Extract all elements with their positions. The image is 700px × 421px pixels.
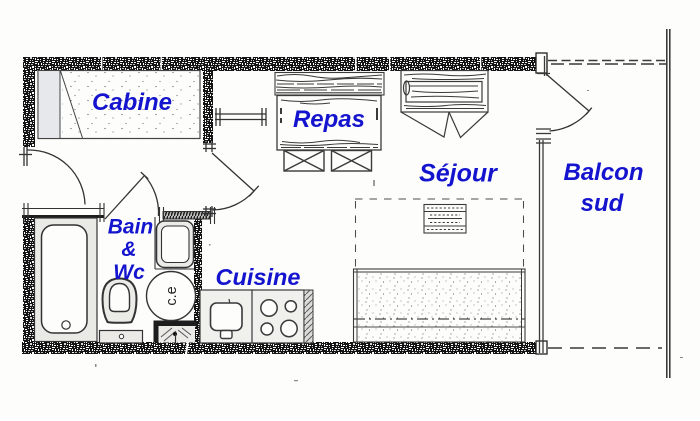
svg-text:c.e: c.e xyxy=(164,286,180,305)
svg-text:Balcon: Balcon xyxy=(563,159,643,186)
svg-text:Séjour: Séjour xyxy=(419,160,498,188)
svg-text:Cabine: Cabine xyxy=(92,89,172,116)
svg-text:Cuisine: Cuisine xyxy=(216,264,301,290)
svg-text:&: & xyxy=(121,238,136,261)
svg-text:sud: sud xyxy=(581,190,625,217)
svg-text:Wc: Wc xyxy=(113,261,145,284)
svg-text:Repas: Repas xyxy=(293,106,365,133)
svg-text:Bain: Bain xyxy=(108,216,154,239)
